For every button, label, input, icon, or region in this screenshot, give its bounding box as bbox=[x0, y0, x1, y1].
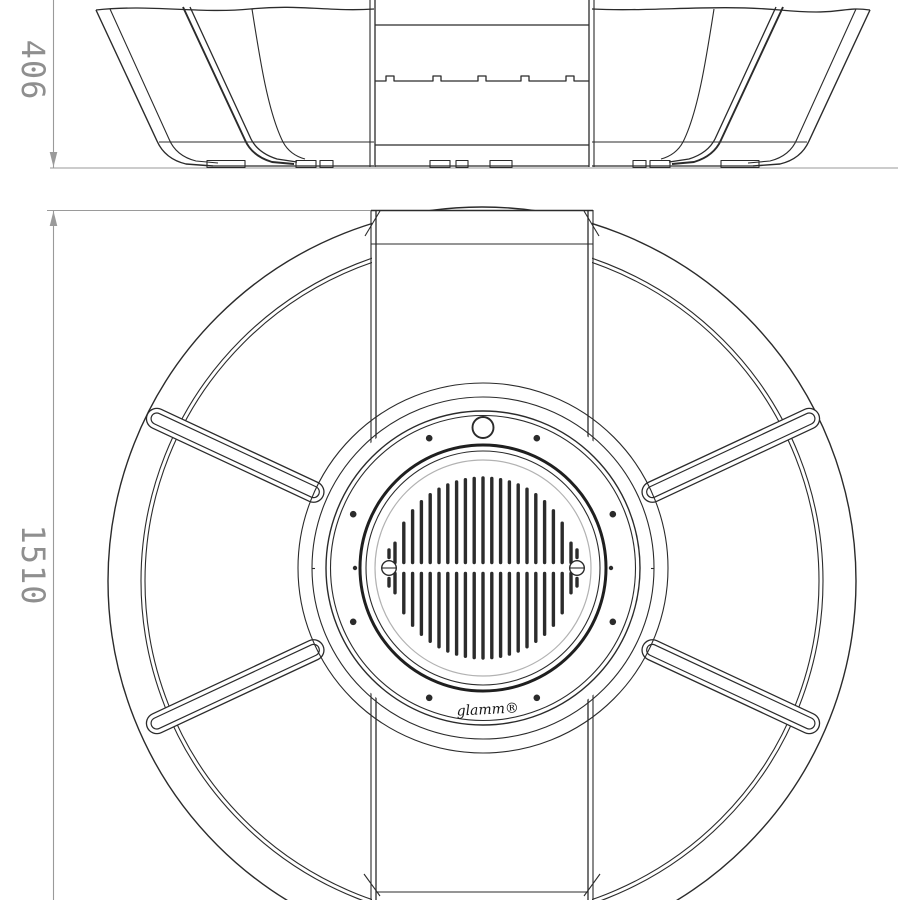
alignment-pin bbox=[353, 566, 357, 570]
spoke-inner-fill bbox=[652, 650, 809, 723]
drawing-svg: glamm® 406 1510 bbox=[0, 0, 900, 900]
left-seat-block bbox=[96, 7, 374, 166]
side-elevation-view bbox=[50, 0, 898, 168]
spoke-inner-fill bbox=[157, 419, 314, 492]
seam-line bbox=[672, 7, 783, 164]
bolt-hole bbox=[426, 435, 433, 442]
dimension-label-height: 406 bbox=[14, 40, 52, 101]
bolt-hole bbox=[610, 619, 617, 626]
section-notched-line bbox=[375, 76, 589, 81]
right-seat-block bbox=[592, 7, 870, 166]
plan-view: glamm® bbox=[108, 207, 856, 900]
center-section bbox=[370, 0, 594, 167]
seam-line bbox=[183, 7, 294, 164]
spoke-lower-left bbox=[157, 650, 314, 723]
dimension-arrow-up bbox=[50, 211, 58, 226]
spoke-upper-right bbox=[652, 419, 809, 492]
spoke-inner-fill bbox=[157, 650, 314, 723]
dimension-height-406: 406 bbox=[14, 0, 57, 168]
burner-face bbox=[315, 400, 651, 736]
cushion-top-edge bbox=[96, 7, 374, 10]
bolt-hole bbox=[426, 695, 433, 702]
spoke-inner-fill bbox=[652, 419, 809, 492]
technical-drawing: glamm® 406 1510 bbox=[0, 0, 900, 900]
bolt-hole bbox=[350, 511, 357, 518]
spoke-lower-right bbox=[652, 650, 809, 723]
bolt-hole bbox=[534, 695, 541, 702]
seam-line bbox=[661, 9, 714, 159]
bolt-hole bbox=[350, 619, 357, 626]
alignment-pin bbox=[609, 566, 613, 570]
cushion-top-edge bbox=[592, 8, 870, 12]
brand-logo: glamm® bbox=[456, 700, 519, 719]
spoke-upper-left bbox=[157, 419, 314, 492]
seam-line bbox=[252, 9, 305, 159]
dimension-label-diameter: 1510 bbox=[14, 524, 52, 605]
burner-assembly: glamm® bbox=[298, 383, 668, 753]
bolt-hole bbox=[610, 511, 617, 518]
bolt-hole bbox=[534, 435, 541, 442]
dimension-arrow-down bbox=[50, 152, 58, 167]
